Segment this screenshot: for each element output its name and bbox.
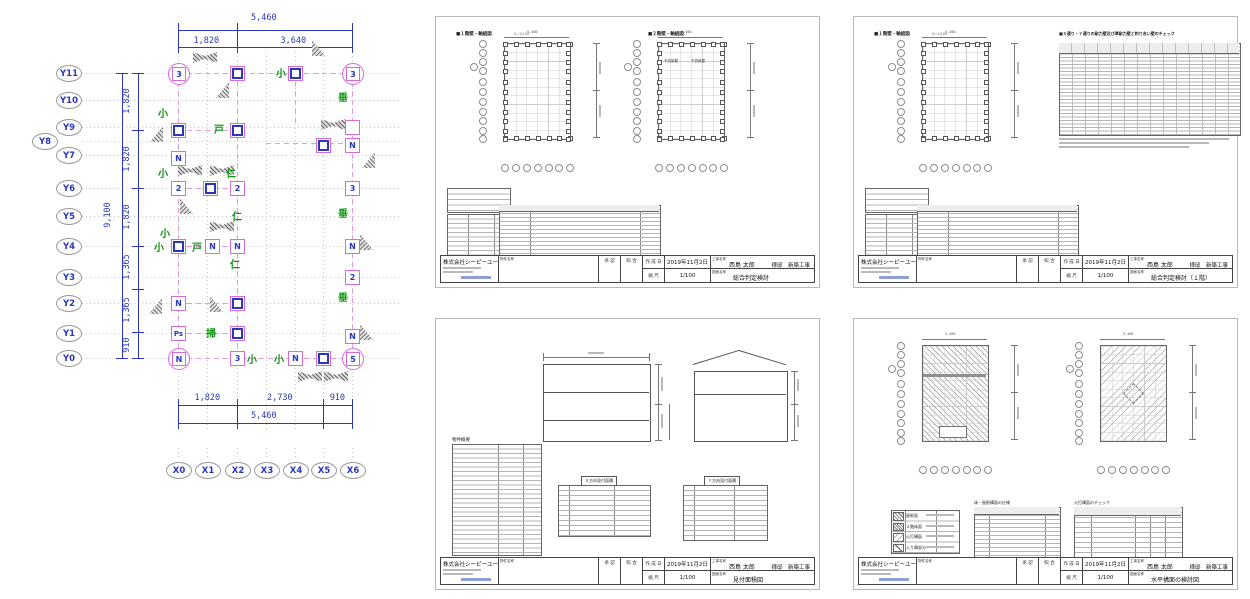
date-label: 作 成 日 [1061, 256, 1082, 269]
approve-cell: 承 認 [598, 256, 620, 282]
legend-swatch [893, 523, 904, 532]
column-post [230, 123, 245, 138]
mini-grid-circle [897, 98, 905, 106]
grid-label-X0: X0 [166, 462, 192, 479]
hardware-mark-N: N [171, 296, 186, 311]
opening-label: 小 [158, 165, 168, 180]
mini-grid-circle [897, 419, 905, 427]
sheet-preview-4[interactable]: 5,4605,460屋根面２階床面火打構面入り隅部分床・屋根構面の仕様火打構面の… [853, 318, 1238, 590]
company-cell: 株式会社シーピーユー [859, 558, 916, 584]
drawing-name-label: 図面名称 [712, 572, 726, 577]
brace-symbol [178, 165, 202, 176]
project-name-label: 物件名称 [500, 257, 514, 262]
mini-grid-circle [1075, 342, 1083, 350]
brace-triangle [360, 234, 373, 250]
owner-name: 西島 太郎 [729, 260, 755, 269]
job-label: 工事名称 [712, 559, 726, 564]
job-suffix: 様邸 新築工事 [771, 563, 810, 571]
scale-label: 縮 尺 [643, 269, 664, 282]
mini-grid-circle [633, 135, 641, 143]
drawing-name-label: 図面名称 [712, 270, 726, 275]
mini-grid-circle [479, 135, 487, 143]
company-cell: 株式会社シーピーユー [441, 558, 498, 584]
mini-grid-circle [897, 127, 905, 135]
mini-plan [504, 43, 571, 140]
brace-symbol [298, 371, 322, 382]
title-block: 株式会社シーピーユー 物件名称 承 認 照 合 作 成 日 縮 尺 2019年1… [858, 557, 1233, 585]
approve-cell: 承 認 [1016, 256, 1038, 282]
grid-label-X5: X5 [311, 462, 337, 479]
company-name: 株式会社シーピーユー [861, 258, 916, 266]
hardware-mark-N: N [171, 151, 186, 166]
mini-grid-circle [633, 58, 641, 66]
mini-grid-circle [897, 342, 905, 350]
column-open [345, 120, 360, 135]
mini-grid-circle [479, 117, 487, 125]
drawing-name: 総合判定検討（１階） [1151, 273, 1211, 282]
grid-label-Y6: Y6 [56, 180, 82, 197]
job-label: 工事名称 [712, 257, 726, 262]
mini-grid-circle [633, 117, 641, 125]
drawing-name: 総合判定検討 [733, 273, 769, 282]
mini-grid-circle [633, 49, 641, 57]
title-block: 株式会社シーピーユー 物件名称 承 認 照 合 作 成 日 縮 尺 2019年1… [440, 557, 815, 585]
mini-grid-circle [633, 127, 641, 135]
title-block: 株式会社シーピーユー 物件名称 承 認 照 合 作 成 日 縮 尺 2019年1… [440, 255, 815, 283]
grid-label-Y0: Y0 [56, 350, 82, 367]
owner-name: 西島 太郎 [729, 562, 755, 571]
scale-value: 1/100 [1083, 269, 1128, 282]
hardware-mark-3: 3 [230, 351, 245, 366]
approve-cell: 承 認 [1016, 558, 1038, 584]
scale-value: 1/100 [665, 269, 710, 282]
elevation-front [543, 364, 651, 442]
opening-label: 小 [160, 225, 170, 240]
opening-label: 小 [158, 105, 168, 120]
legend-label: 入り隅部分 [906, 545, 926, 551]
column-post [230, 326, 245, 341]
mini-grid-circle [633, 67, 641, 75]
date-label: 作 成 日 [643, 256, 664, 269]
mini-grid-circle [1075, 360, 1083, 368]
mini-grid-circle [897, 49, 905, 57]
grid-label-Y5: Y5 [56, 208, 82, 225]
property-table-title: 物件概要 [452, 437, 470, 443]
job-suffix: 様邸 新築工事 [1189, 261, 1228, 269]
mini-grid-circle [897, 360, 905, 368]
grid-label-Y7: Y7 [56, 147, 82, 164]
column-post [171, 123, 186, 138]
drawing-name-label: 図面名称 [1130, 572, 1144, 577]
hardware-mark-Ps: Ps [171, 326, 186, 341]
brace-triangle [210, 296, 223, 312]
mini-grid-circle [897, 135, 905, 143]
drawing-name-label: 図面名称 [1130, 270, 1144, 275]
mini-plan [922, 345, 989, 442]
mini-grid-circle [479, 127, 487, 135]
brace-triangle [312, 40, 325, 56]
mini-grid-circle [633, 78, 641, 86]
grid-label-Y1: Y1 [56, 325, 82, 342]
brace-triangle [149, 298, 162, 314]
hardware-mark-N: N [345, 239, 360, 254]
opening-label: 戸 [192, 239, 202, 254]
opening-label: 戸 [214, 121, 224, 136]
column-post [203, 181, 218, 196]
brace-symbol [193, 52, 217, 63]
column-post [316, 138, 331, 153]
through-post-mark-N: N [168, 348, 190, 370]
mini-grid-circle [897, 380, 905, 388]
drawing-name: 水平構面の検討図 [1151, 575, 1199, 584]
opening-label: 垂 [338, 89, 348, 104]
company-cell: 株式会社シーピーユー [859, 256, 916, 282]
cad-canvas: 5,4601,8203,6401,8202,7309105,4601,8201,… [0, 0, 1250, 599]
title-block: 株式会社シーピーユー 物件名称 承 認 照 合 作 成 日 縮 尺 2019年1… [858, 255, 1233, 283]
room-label: 子供部屋 [691, 59, 705, 64]
scale-label: 縮 尺 [1061, 269, 1082, 282]
date-value: 2019年11月2日 [1083, 558, 1128, 571]
job-suffix: 様邸 新築工事 [1189, 563, 1228, 571]
brace-triangle [360, 324, 373, 340]
hardware-mark-N: N [345, 138, 360, 153]
mini-plan [658, 43, 725, 140]
project-name-label: 物件名称 [500, 559, 514, 564]
hardware-mark-N: N [345, 329, 360, 344]
owner-name: 西島 太郎 [1147, 260, 1173, 269]
hardware-mark-2: 2 [230, 181, 245, 196]
grid-label-Y2: Y2 [56, 295, 82, 312]
mini-grid-circle [897, 108, 905, 116]
hardware-mark-3: 3 [345, 181, 360, 196]
approve-cell: 承 認 [598, 558, 620, 584]
brace-triangle [150, 126, 163, 142]
mini-grid-circle [479, 67, 487, 75]
scale-label: 縮 尺 [1061, 571, 1082, 584]
owner-name: 西島 太郎 [1147, 562, 1173, 571]
mini-grid-circle [897, 58, 905, 66]
hardware-mark-N: N [230, 239, 245, 254]
opening-label: 小 [154, 239, 164, 254]
mini-grid-circle [888, 63, 896, 71]
dim-bottom-total: 5,460 [251, 411, 277, 421]
mini-grid-circle [1075, 380, 1083, 388]
mini-grid-circle [1075, 437, 1083, 445]
opening-label: 掃 [206, 325, 216, 340]
legend-label: 火打構面 [906, 534, 922, 540]
dim-left-total: 9,100 [103, 199, 113, 231]
legend-label: ２階床面 [906, 524, 922, 530]
mini-grid-circle [897, 78, 905, 86]
grid-label-X6: X6 [340, 462, 366, 479]
company-name: 株式会社シーピーユー [443, 560, 498, 568]
sheet-preview-2[interactable]: ■１階壁・軸組図S=1/100■Ｘ通り・Ｙ通りの耐力壁及び準耐力壁と釣り合い壁の… [853, 16, 1238, 288]
grid-label-Y4: Y4 [56, 238, 82, 255]
mini-grid-circle [479, 58, 487, 66]
brace-symbol [210, 221, 234, 232]
grid-label-Y8: Y8 [32, 133, 58, 150]
check-cell: 照 合 [1038, 558, 1060, 584]
opening-label: 小 [276, 65, 286, 80]
check-cell: 照 合 [620, 558, 642, 584]
column-post [288, 66, 303, 81]
sheet-preview-1[interactable]: ■１階壁・軸組図S=1/100■２階壁・軸組図5,460子供部屋子供部屋5,46… [435, 16, 820, 288]
legend-label: 屋根面 [906, 513, 918, 519]
check-table-title: 火打構面のチェック [1074, 500, 1110, 506]
mini-grid-circle [897, 400, 905, 408]
mini-grid-circle [479, 40, 487, 48]
job-suffix: 様邸 新築工事 [771, 261, 810, 269]
mini-grid-circle [1075, 410, 1083, 418]
x-area-table [558, 485, 651, 537]
check-cell: 照 合 [620, 256, 642, 282]
mini-grid-circle [897, 369, 905, 377]
property-table [452, 444, 542, 556]
drawing-name: 見付面積図 [733, 575, 763, 584]
mini-grid-circle [897, 117, 905, 125]
grid-label-X2: X2 [225, 462, 251, 479]
room-label: 子供部屋 [664, 59, 678, 64]
date-label: 作 成 日 [1061, 558, 1082, 571]
y-area-table [683, 485, 768, 541]
project-name-label: 物件名称 [918, 257, 932, 262]
mini-grid-circle [1075, 400, 1083, 408]
grid-label-Y10: Y10 [56, 92, 82, 109]
mini-grid-circle [897, 67, 905, 75]
grid-label-X1: X1 [195, 462, 221, 479]
opening-label: 仁 [226, 165, 236, 180]
column-post [230, 296, 245, 311]
legend-swatch [893, 544, 904, 553]
mini-grid-circle [479, 49, 487, 57]
mini-grid-circle [897, 40, 905, 48]
grid-label-X4: X4 [283, 462, 309, 479]
date-value: 2019年11月2日 [665, 256, 710, 269]
hardware-mark-2: 2 [171, 181, 186, 196]
mini-grid-circle [479, 78, 487, 86]
scale-value: 1/100 [665, 571, 710, 584]
mini-grid-circle [470, 63, 478, 71]
column-post [171, 239, 186, 254]
mini-grid-circle [1066, 365, 1074, 373]
dim-top-total: 5,460 [251, 13, 277, 23]
legend-swatch [893, 533, 904, 542]
company-cell: 株式会社シーピーユー [441, 256, 498, 282]
mini-grid-circle [1075, 419, 1083, 427]
brace-triangle [216, 82, 229, 98]
check-cell: 照 合 [1038, 256, 1060, 282]
opening-label: 仁 [230, 256, 240, 271]
mini-grid-circle [1075, 429, 1083, 437]
mini-plan [1100, 345, 1167, 442]
brace-symbol [324, 371, 348, 382]
mini-grid-circle [897, 437, 905, 445]
project-name-label: 物件名称 [918, 559, 932, 564]
opening-label: 垂 [338, 289, 348, 304]
mini-grid-circle [633, 108, 641, 116]
grid-label-Y11: Y11 [56, 65, 82, 82]
company-name: 株式会社シーピーユー [443, 258, 498, 266]
mini-grid-circle [897, 429, 905, 437]
through-post-mark-3: 3 [168, 63, 190, 85]
opening-label: 小 [247, 351, 257, 366]
mini-grid-circle [633, 40, 641, 48]
brace-symbol [321, 119, 345, 130]
column-post [316, 351, 331, 366]
company-name: 株式会社シーピーユー [861, 560, 916, 568]
mini-grid-circle [479, 108, 487, 116]
through-post-mark-3: 3 [342, 63, 364, 85]
hardware-mark-2: 2 [345, 270, 360, 285]
mini-grid-circle [897, 390, 905, 398]
date-value: 2019年11月2日 [1083, 256, 1128, 269]
grid-line-x [266, 52, 267, 432]
mini-plan [922, 43, 989, 140]
elevation-side [694, 371, 788, 442]
opening-label: 仁 [232, 208, 242, 223]
mini-grid-circle [633, 98, 641, 106]
mini-grid-circle [897, 88, 905, 96]
sheet-preview-3[interactable]: 物件概要Ｘ方向見付面積Ｙ方向見付面積 株式会社シーピーユー 物件名称 承 認 照… [435, 318, 820, 590]
mini-grid-circle [1075, 390, 1083, 398]
grid-line-x [323, 52, 324, 432]
mini-grid-circle [479, 88, 487, 96]
mini-grid-circle [1075, 369, 1083, 377]
opening-label: 垂 [338, 205, 348, 220]
scale-label: 縮 尺 [643, 571, 664, 584]
job-label: 工事名称 [1130, 257, 1144, 262]
column-post [230, 66, 245, 81]
spec-table-title: 床・屋根構面の仕様 [974, 500, 1010, 506]
floor-plan-drawing: 5,4601,8203,6401,8202,7309105,4601,8201,… [0, 0, 432, 599]
brace-triangle [180, 198, 193, 214]
mini-grid-circle [633, 88, 641, 96]
grid-label-Y3: Y3 [56, 269, 82, 286]
through-post-mark-5: 5 [342, 348, 364, 370]
job-label: 工事名称 [1130, 559, 1144, 564]
grid-label-X3: X3 [254, 462, 280, 479]
mini-grid-circle [888, 365, 896, 373]
hardware-mark-N: N [205, 239, 220, 254]
scale-value: 1/100 [1083, 571, 1128, 584]
mini-grid-circle [897, 410, 905, 418]
legend-swatch [893, 512, 904, 521]
mini-grid-circle [897, 351, 905, 359]
date-label: 作 成 日 [643, 558, 664, 571]
mini-grid-circle [624, 63, 632, 71]
grid-label-Y9: Y9 [56, 119, 82, 136]
date-value: 2019年11月2日 [665, 558, 710, 571]
mini-grid-circle [479, 98, 487, 106]
mini-grid-circle [1075, 351, 1083, 359]
hardware-mark-N: N [288, 351, 303, 366]
opening-label: 小 [274, 351, 284, 366]
